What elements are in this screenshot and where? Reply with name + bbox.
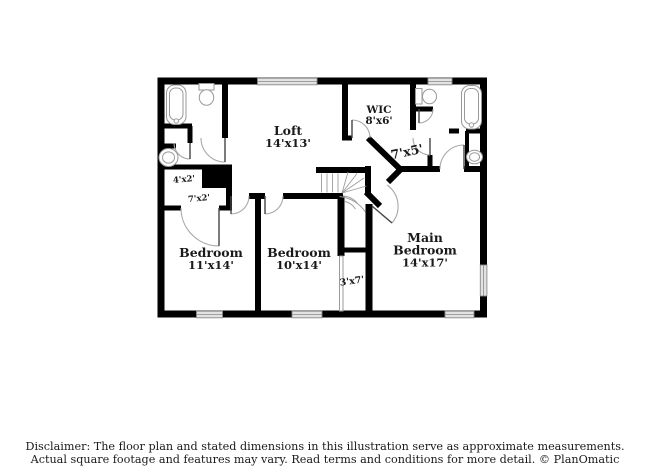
- room-dims-loft: 14'x13': [265, 136, 311, 150]
- door-arc: [231, 196, 249, 214]
- disclaimer: Disclaimer: The floor plan and stated di…: [0, 441, 650, 466]
- door-arc: [201, 138, 225, 162]
- room-dims-closet-3x7: 3'x7': [339, 274, 365, 288]
- bathtub-icon: [462, 86, 482, 130]
- door-arc: [181, 208, 219, 246]
- bathtub-icon: [167, 85, 187, 125]
- sink-icon: [467, 150, 483, 164]
- door-leaf: [372, 206, 392, 223]
- door-arc: [265, 196, 283, 214]
- room-dims-hall-7x2: 7'x2': [188, 193, 211, 205]
- door-arc: [440, 145, 464, 169]
- room-dims-main-bedroom: 14'x17': [402, 256, 448, 270]
- toilet-icon: [416, 89, 437, 105]
- sink-icon: [159, 149, 178, 167]
- room-dims-bedroom-left: 11'x14': [188, 258, 234, 272]
- room-dims-bedroom-middle: 10'x14': [276, 258, 322, 272]
- room-dims-hall-7x5: 7'x5': [389, 141, 424, 162]
- disclaimer-line-2: Actual square footage and features may v…: [0, 454, 650, 467]
- disclaimer-line-1: Disclaimer: The floor plan and stated di…: [0, 441, 650, 454]
- floor-plan-page: Loft 14'x13' WIC 8'x6' 7'x5' 4'x2' 7'x2'…: [0, 0, 650, 473]
- floor-plan: Loft 14'x13' WIC 8'x6' 7'x5' 4'x2' 7'x2'…: [0, 0, 650, 473]
- door-arc: [387, 185, 398, 223]
- wall-diagonal: [366, 192, 380, 206]
- room-dims-wic: 8'x6': [365, 115, 392, 127]
- room-dims-closet-4x2: 4'x2': [173, 174, 196, 186]
- toilet-icon: [199, 84, 214, 106]
- wall-diagonal: [388, 170, 400, 182]
